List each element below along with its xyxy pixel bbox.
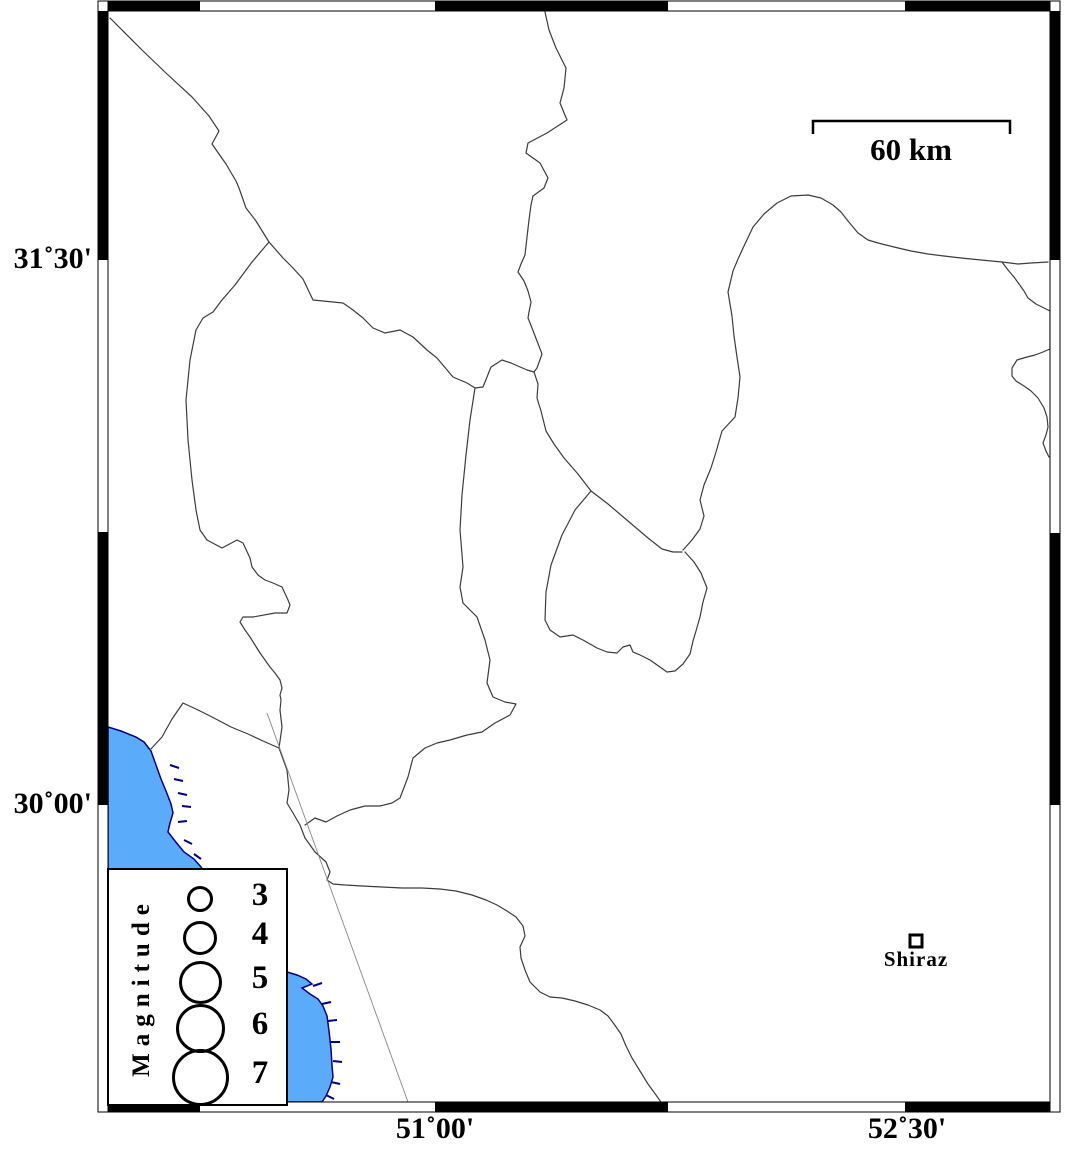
- magnitude-value: 3: [236, 877, 284, 914]
- magnitude-circle: [187, 886, 213, 912]
- latitude-label-north: 31˚30': [0, 242, 92, 276]
- city-label: Shiraz: [846, 947, 986, 972]
- map-page: 31˚30' 30˚00' 51˚00' 52˚30' 60 km Shiraz…: [0, 0, 1066, 1153]
- magnitude-value: 6: [236, 1006, 284, 1043]
- magnitude-legend: Magnitude 34567: [107, 868, 288, 1106]
- magnitude-circle: [179, 961, 222, 1004]
- magnitude-circle: [172, 1049, 229, 1106]
- longitude-label-east: 52˚30': [827, 1112, 987, 1146]
- scale-bar-label: 60 km: [831, 132, 991, 168]
- longitude-label-west: 51˚00': [355, 1112, 515, 1146]
- city-marker-icon: [910, 935, 922, 947]
- magnitude-value: 4: [236, 916, 284, 953]
- latitude-label-south: 30˚00': [0, 787, 92, 821]
- magnitude-value: 7: [236, 1055, 284, 1092]
- magnitude-circle: [183, 921, 217, 955]
- legend-title: Magnitude: [128, 897, 156, 1077]
- magnitude-circle: [176, 1004, 225, 1053]
- magnitude-value: 5: [236, 960, 284, 997]
